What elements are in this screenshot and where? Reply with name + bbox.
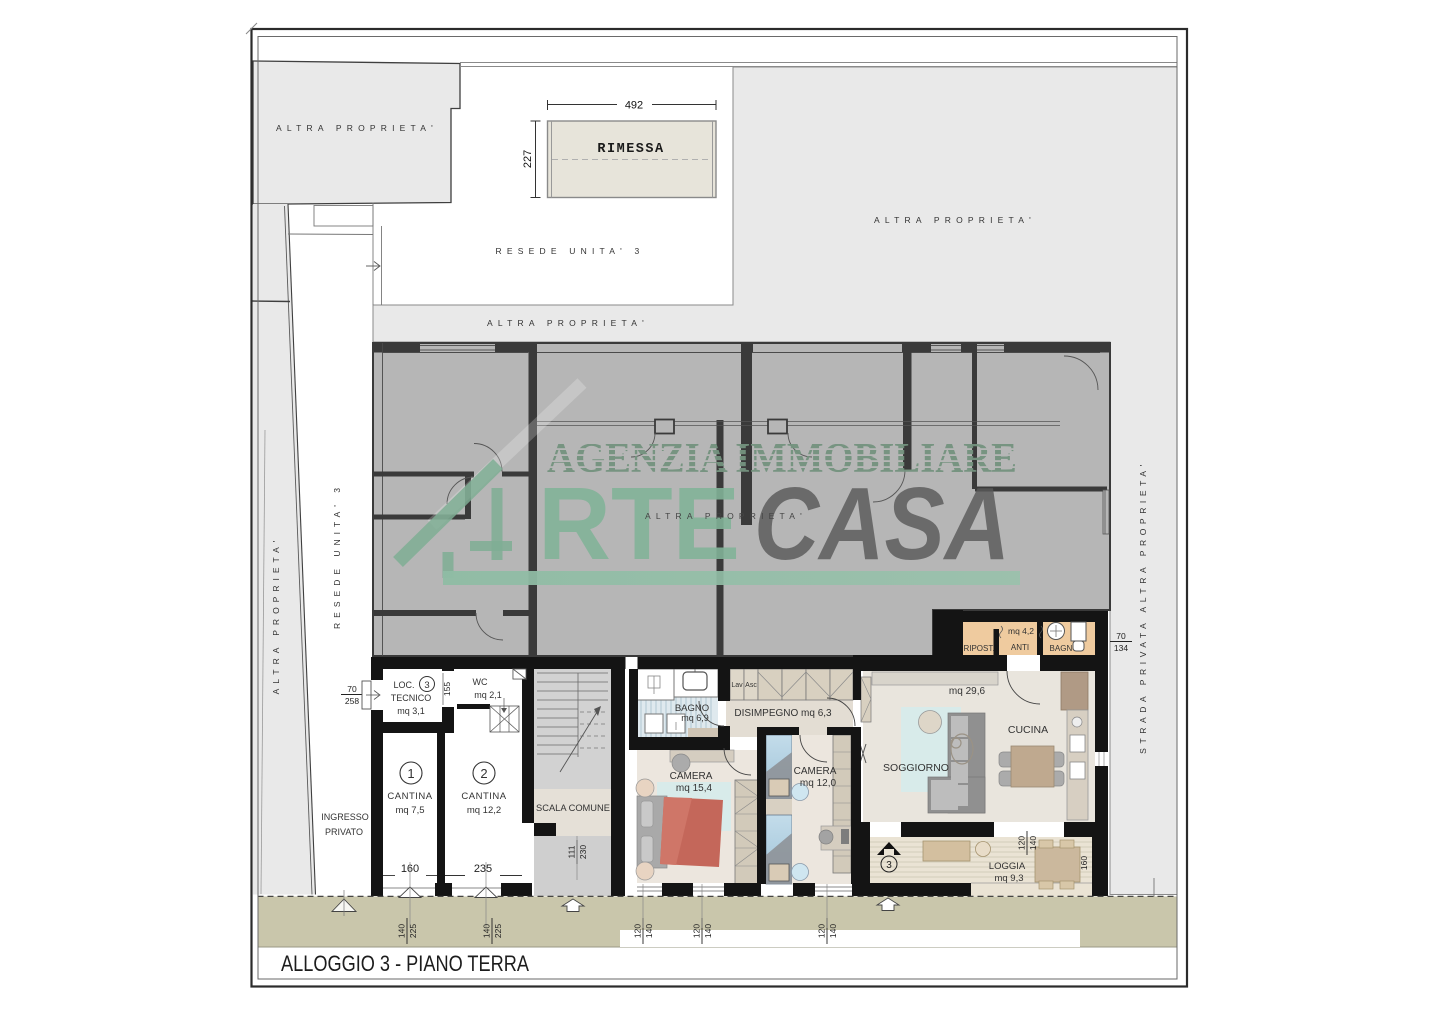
- svg-text:134: 134: [1114, 643, 1128, 653]
- svg-text:mq 2,1: mq 2,1: [474, 690, 502, 700]
- svg-text:LOC.: LOC.: [393, 680, 414, 690]
- svg-text:120: 120: [1017, 836, 1027, 850]
- svg-text:225: 225: [408, 924, 418, 938]
- svg-text:227: 227: [522, 150, 534, 168]
- svg-text:140: 140: [1028, 836, 1038, 850]
- svg-text:230: 230: [578, 845, 588, 859]
- svg-text:3: 3: [886, 860, 892, 871]
- svg-text:ANTI: ANTI: [1011, 643, 1029, 652]
- svg-text:160: 160: [1079, 856, 1089, 870]
- svg-text:1: 1: [407, 766, 414, 781]
- svg-text:111: 111: [567, 845, 577, 858]
- svg-text:mq 29,6: mq 29,6: [949, 686, 986, 697]
- svg-text:CASA: CASA: [754, 466, 1010, 581]
- svg-text:SCALA COMUNE: SCALA COMUNE: [536, 803, 610, 813]
- svg-text:WC: WC: [473, 677, 488, 687]
- svg-text:mq 4,2: mq 4,2: [1008, 626, 1034, 636]
- svg-text:CAMERA: CAMERA: [670, 771, 713, 782]
- svg-text:RESEDE UNITA' 3: RESEDE UNITA' 3: [332, 483, 342, 629]
- svg-text:ALTRA PROPRIETA': ALTRA PROPRIETA': [645, 511, 807, 521]
- svg-text:70: 70: [1116, 631, 1126, 641]
- svg-text:225: 225: [493, 924, 503, 938]
- svg-text:mq 12,2: mq 12,2: [467, 805, 501, 816]
- svg-text:mq 7,5: mq 7,5: [395, 805, 424, 816]
- svg-text:INGRESSO: INGRESSO: [321, 812, 369, 822]
- svg-text:RIMESSA: RIMESSA: [597, 142, 664, 157]
- svg-text:492: 492: [625, 100, 643, 112]
- svg-text:120: 120: [692, 924, 702, 938]
- svg-text:DISIMPEGNO mq 6,3: DISIMPEGNO mq 6,3: [734, 708, 832, 719]
- svg-text:120: 120: [633, 924, 643, 938]
- svg-text:mq 6,9: mq 6,9: [681, 713, 709, 723]
- svg-text:120: 120: [817, 924, 827, 938]
- svg-text:140: 140: [482, 924, 492, 938]
- svg-text:140: 140: [397, 924, 407, 938]
- svg-text:RIPOST.: RIPOST.: [963, 644, 994, 653]
- svg-text:ALTRA PROPRIETA': ALTRA PROPRIETA': [276, 123, 438, 133]
- svg-text:Lav: Lav: [731, 682, 743, 689]
- svg-text:258: 258: [345, 696, 359, 706]
- svg-text:155: 155: [442, 682, 452, 696]
- svg-text:mq 12,0: mq 12,0: [800, 778, 837, 789]
- svg-text:mq 9,3: mq 9,3: [994, 873, 1023, 884]
- svg-text:CUCINA: CUCINA: [1008, 724, 1048, 736]
- svg-text:mq 3,1: mq 3,1: [397, 706, 425, 716]
- svg-text:CANTINA: CANTINA: [461, 791, 506, 802]
- svg-text:TECNICO: TECNICO: [391, 693, 432, 703]
- svg-text:70: 70: [347, 684, 357, 694]
- svg-text:SOGGIORNO: SOGGIORNO: [883, 762, 949, 774]
- svg-text:RTE: RTE: [538, 466, 740, 581]
- svg-text:ALLOGGIO 3 - PIANO TERRA: ALLOGGIO 3 - PIANO TERRA: [281, 951, 529, 976]
- svg-text:ALTRA PROPRIETA': ALTRA PROPRIETA': [271, 536, 281, 695]
- svg-text:Asc: Asc: [745, 682, 757, 689]
- svg-text:ALTRA PROPRIETA': ALTRA PROPRIETA': [874, 215, 1036, 225]
- svg-text:mq 15,4: mq 15,4: [676, 783, 713, 794]
- svg-text:140: 140: [644, 924, 654, 938]
- svg-text:LOGGIA: LOGGIA: [989, 861, 1026, 872]
- svg-text:RESEDE UNITA' 3: RESEDE UNITA' 3: [496, 246, 645, 256]
- svg-text:235: 235: [474, 863, 492, 875]
- svg-text:2: 2: [480, 766, 487, 781]
- svg-text:CAMERA: CAMERA: [794, 766, 837, 777]
- svg-text:140: 140: [828, 924, 838, 938]
- svg-text:PRIVATO: PRIVATO: [325, 827, 363, 837]
- svg-text:CANTINA: CANTINA: [387, 791, 432, 802]
- svg-text:3: 3: [424, 680, 429, 691]
- svg-text:140: 140: [703, 924, 713, 938]
- svg-text:ALTRA PROPRIETA': ALTRA PROPRIETA': [487, 318, 649, 328]
- svg-text:STRADA PRIVATA ALTRA PROPRIETA: STRADA PRIVATA ALTRA PROPRIETA': [1138, 460, 1148, 754]
